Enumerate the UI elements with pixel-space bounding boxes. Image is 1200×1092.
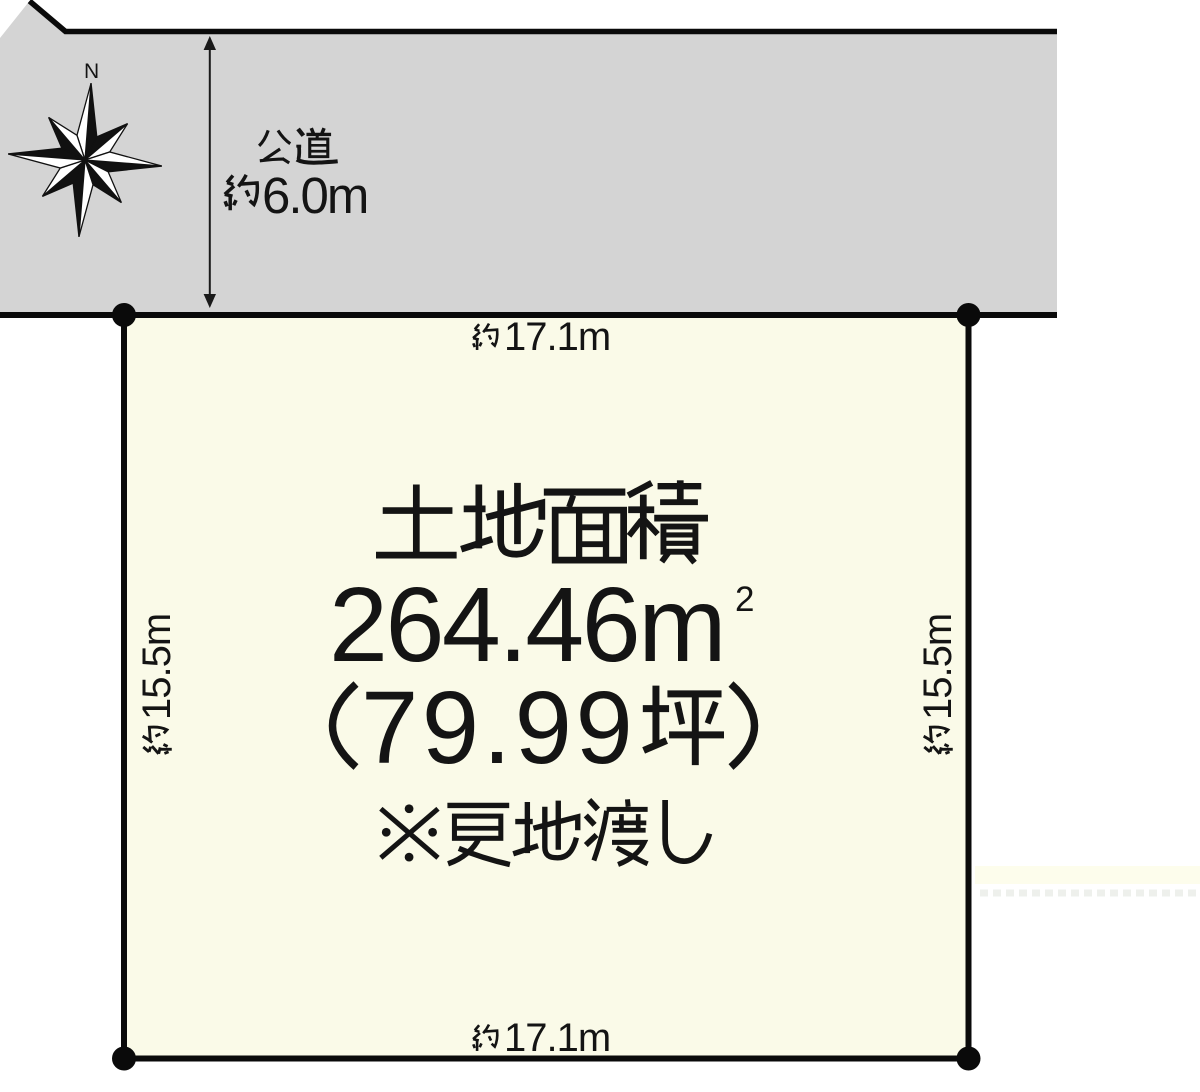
svg-text:264.46m: 264.46m — [329, 566, 724, 684]
svg-text:15.5m: 15.5m — [916, 614, 960, 720]
svg-text:15.5m: 15.5m — [135, 614, 179, 720]
svg-text:6.0m: 6.0m — [262, 167, 367, 224]
svg-text:N: N — [84, 60, 99, 83]
svg-text:17.1m: 17.1m — [504, 315, 610, 359]
svg-text:17.1m: 17.1m — [504, 1016, 610, 1060]
svg-text:2: 2 — [735, 580, 754, 619]
svg-text:79.99: 79.99 — [361, 670, 636, 785]
